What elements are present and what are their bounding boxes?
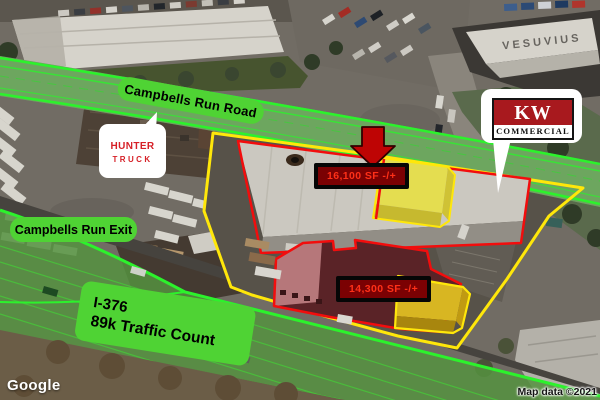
building1-sf-label: 16,100 SF -/+ <box>314 163 409 189</box>
kw-logo-initials: KW <box>494 100 572 125</box>
exit-label-pill: Campbells Run Exit <box>10 217 137 242</box>
building2-sf-label: 14,300 SF -/+ <box>336 276 431 302</box>
kw-commercial-logo: KW COMMERCIAL <box>492 98 574 140</box>
hunter-truck-logo: HUNTER TRUCK <box>100 129 165 175</box>
google-watermark: Google <box>7 377 60 394</box>
aerial-marketing-map: VESUVIUS <box>0 0 600 400</box>
hunter-logo-line2: TRUCK <box>113 155 153 164</box>
kw-logo-wordmark: COMMERCIAL <box>494 125 572 138</box>
annotation-layer: Campbells Run Road Campbells Run Exit I-… <box>0 0 600 400</box>
map-data-attribution: Map data ©2021 <box>517 386 597 398</box>
hunter-logo-line1: HUNTER <box>110 141 154 152</box>
highway-label-box: I-376 89k Traffic Count <box>74 280 257 367</box>
building2-sf-value: 14,300 SF -/+ <box>340 280 427 298</box>
road-label-pill: Campbells Run Road <box>116 75 266 126</box>
building1-sf-value: 16,100 SF -/+ <box>318 167 405 185</box>
